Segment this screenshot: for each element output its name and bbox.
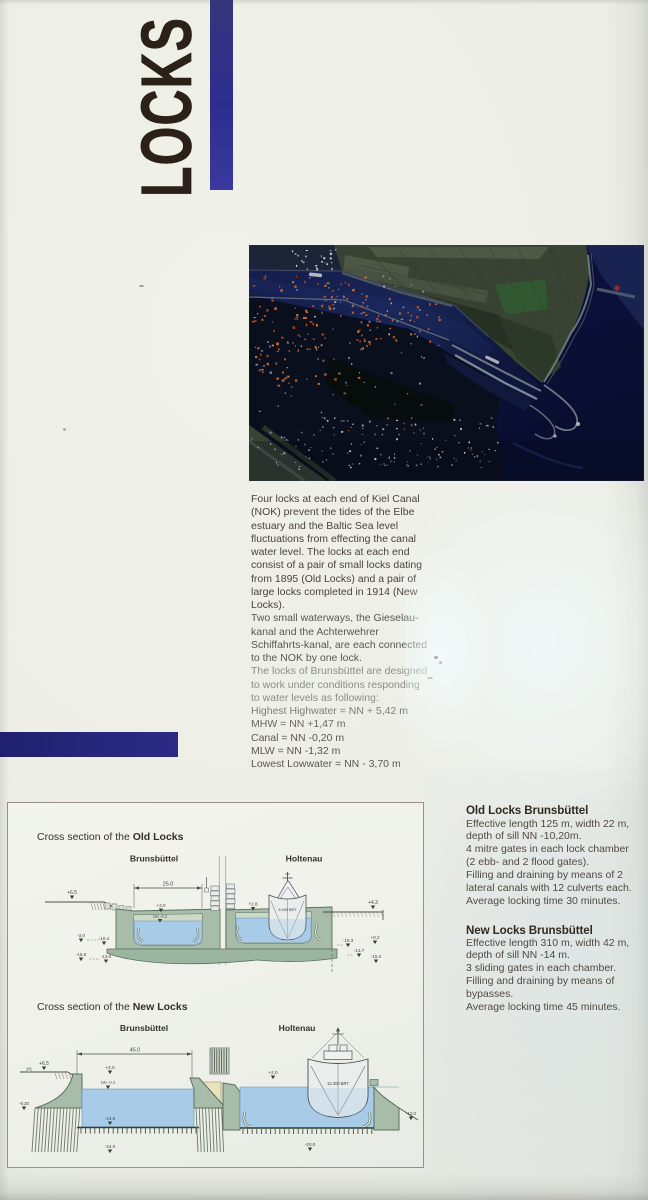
svg-text:13 300 BRT: 13 300 BRT	[327, 1081, 349, 1086]
svg-text:Holtenau: Holtenau	[279, 1023, 316, 1033]
svg-text:-10.3: -10.3	[343, 938, 354, 943]
svg-text:-14.0: -14.0	[105, 1116, 116, 1121]
svg-text:6 000 BRT: 6 000 BRT	[278, 908, 297, 912]
svg-text:-12.0: -12.0	[406, 1111, 417, 1116]
svg-text:+6.5: +6.5	[67, 890, 77, 896]
svg-text:-24.0: -24.0	[105, 1144, 116, 1149]
svg-text:-15.2: -15.2	[371, 954, 382, 959]
svg-text:+4.3: +4.3	[368, 900, 378, 906]
svg-text:-16.5: -16.5	[76, 952, 87, 957]
svg-text:-13.0: -13.0	[101, 954, 112, 959]
svg-text:Holtenau: Holtenau	[286, 854, 323, 864]
svg-text:Cross section of the Old Locks: Cross section of the Old Locks	[37, 831, 184, 843]
svg-text:-20.0: -20.0	[305, 1142, 316, 1147]
svg-text:45.0: 45.0	[130, 1048, 141, 1054]
svg-text:-9.20: -9.20	[19, 1101, 30, 1106]
svg-text:Brunsbüttel: Brunsbüttel	[130, 854, 178, 864]
svg-text:+2.8: +2.8	[248, 902, 258, 907]
svg-text:-10.4: -10.4	[99, 936, 110, 941]
svg-text:Cross section of the New Locks: Cross section of the New Locks	[37, 1001, 188, 1013]
svg-text:+4.0: +4.0	[105, 1065, 115, 1071]
svg-text:+2.0: +2.0	[268, 1070, 278, 1075]
svg-text:Brunsbüttel: Brunsbüttel	[120, 1023, 168, 1033]
svg-text:NN -0.2: NN -0.2	[153, 914, 168, 919]
svg-text:+6.5: +6.5	[39, 1061, 49, 1067]
svg-text:25.0: 25.0	[163, 882, 174, 888]
svg-text:LOCKS: LOCKS	[127, 17, 207, 197]
svg-text:NN -0.2: NN -0.2	[101, 1080, 116, 1085]
svg-text:+3.0: +3.0	[156, 903, 166, 908]
svg-text:+0.2: +0.2	[370, 935, 380, 940]
svg-text:-13.7: -13.7	[354, 948, 365, 953]
svg-text:-3.0: -3.0	[77, 933, 85, 938]
